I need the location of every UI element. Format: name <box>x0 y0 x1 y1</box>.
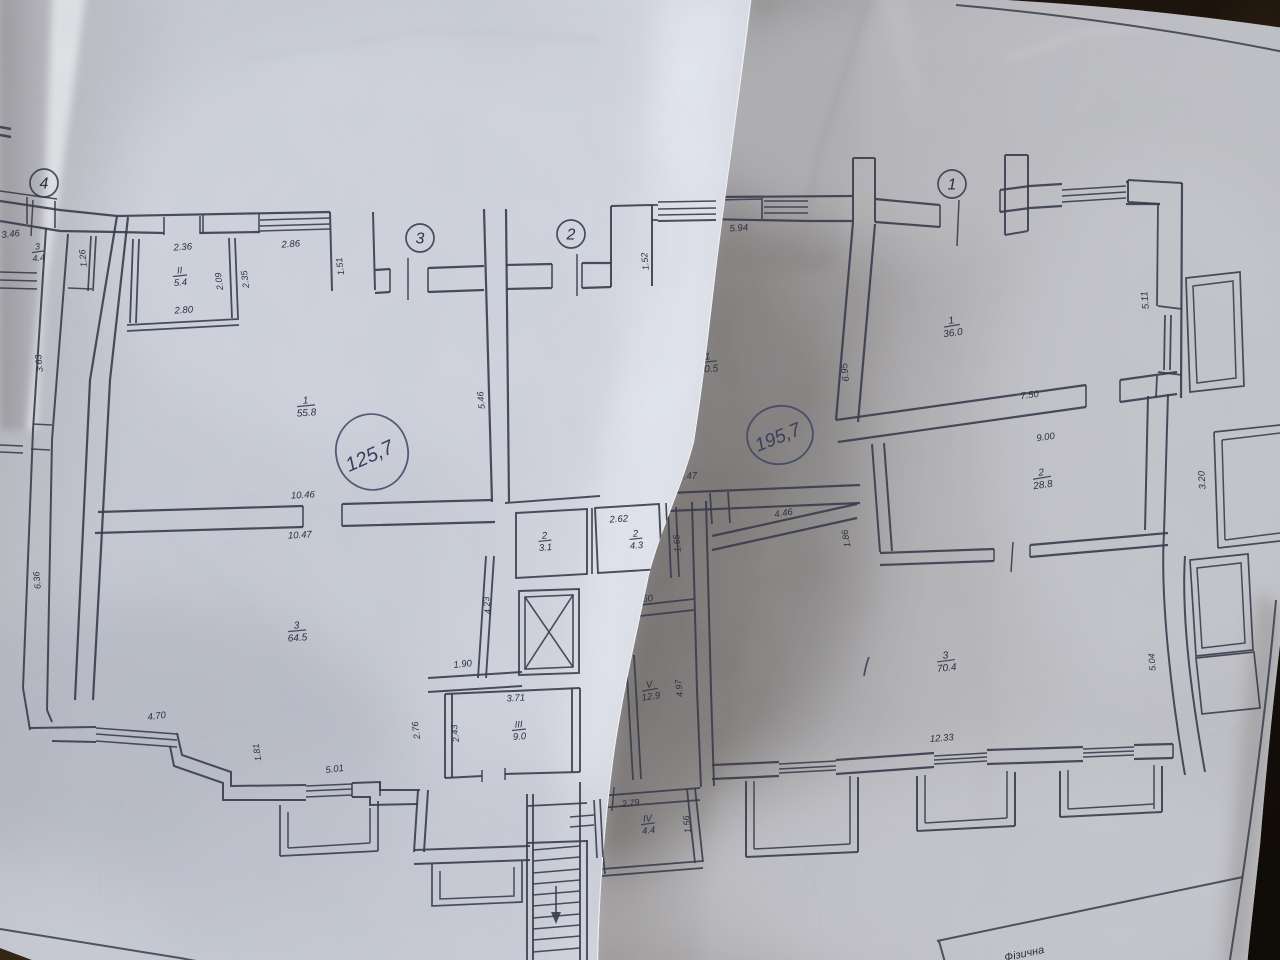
svg-text:1: 1 <box>948 177 957 194</box>
svg-text:1.52: 1.52 <box>639 252 651 270</box>
svg-text:4.3: 4.3 <box>630 540 645 552</box>
svg-text:70.4: 70.4 <box>937 662 958 675</box>
svg-text:2: 2 <box>566 227 576 244</box>
svg-text:10.47: 10.47 <box>288 529 313 541</box>
svg-text:5.94: 5.94 <box>729 222 748 234</box>
svg-text:5.46: 5.46 <box>475 391 487 409</box>
svg-text:5.01: 5.01 <box>325 763 345 776</box>
svg-text:1.90: 1.90 <box>453 658 473 671</box>
svg-text:3.20: 3.20 <box>1196 470 1208 490</box>
svg-text:4.23: 4.23 <box>481 596 493 615</box>
svg-text:2.80: 2.80 <box>173 304 194 316</box>
svg-text:2.79: 2.79 <box>620 797 639 809</box>
svg-text:4: 4 <box>40 176 49 193</box>
svg-text:2.86: 2.86 <box>280 238 301 250</box>
svg-text:1.26: 1.26 <box>77 249 89 267</box>
svg-text:1.56: 1.56 <box>681 815 693 833</box>
svg-text:6.36: 6.36 <box>31 571 43 589</box>
svg-text:3: 3 <box>416 231 425 248</box>
svg-text:1.51: 1.51 <box>334 257 346 276</box>
svg-text:4.4: 4.4 <box>642 825 656 837</box>
svg-text:4.97: 4.97 <box>673 678 685 697</box>
svg-text:55.8: 55.8 <box>296 407 317 419</box>
svg-text:5.11: 5.11 <box>1139 291 1152 310</box>
svg-text:3.71: 3.71 <box>506 692 525 704</box>
svg-text:2.36: 2.36 <box>172 241 193 253</box>
svg-text:10.46: 10.46 <box>291 489 316 501</box>
svg-text:64.5: 64.5 <box>287 632 308 644</box>
svg-text:5.04: 5.04 <box>1146 653 1157 671</box>
svg-text:4.4: 4.4 <box>32 252 45 263</box>
svg-text:9.0: 9.0 <box>513 731 528 743</box>
svg-text:3.63: 3.63 <box>33 354 45 372</box>
svg-text:6.95: 6.95 <box>839 362 852 382</box>
svg-text:3: 3 <box>34 241 40 251</box>
svg-text:5.4: 5.4 <box>174 277 188 289</box>
svg-text:3.1: 3.1 <box>539 542 553 554</box>
svg-text:3.46: 3.46 <box>1 228 21 241</box>
svg-text:12.33: 12.33 <box>930 732 955 745</box>
svg-text:4.70: 4.70 <box>147 710 167 723</box>
svg-text:2.62: 2.62 <box>608 513 629 525</box>
